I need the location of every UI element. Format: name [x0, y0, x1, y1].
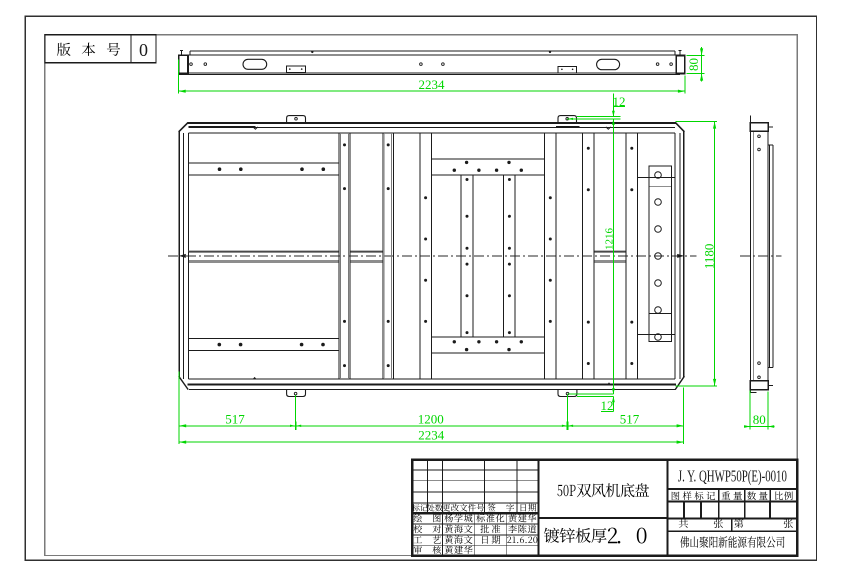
- svg-text:1200: 1200: [418, 411, 444, 426]
- svg-text:80: 80: [686, 58, 701, 71]
- svg-text:12: 12: [601, 398, 614, 413]
- svg-text:80: 80: [753, 412, 766, 427]
- svg-text:1216: 1216: [604, 228, 616, 251]
- svg-text:517: 517: [620, 411, 640, 426]
- svg-text:517: 517: [225, 411, 245, 426]
- svg-text:2234: 2234: [418, 428, 445, 443]
- svg-text:1180: 1180: [701, 244, 716, 270]
- svg-text:J. Y. QHWP50P(E)-0010: J. Y. QHWP50P(E)-0010: [678, 466, 787, 485]
- svg-text:2234: 2234: [419, 77, 446, 92]
- svg-text:0: 0: [139, 40, 148, 60]
